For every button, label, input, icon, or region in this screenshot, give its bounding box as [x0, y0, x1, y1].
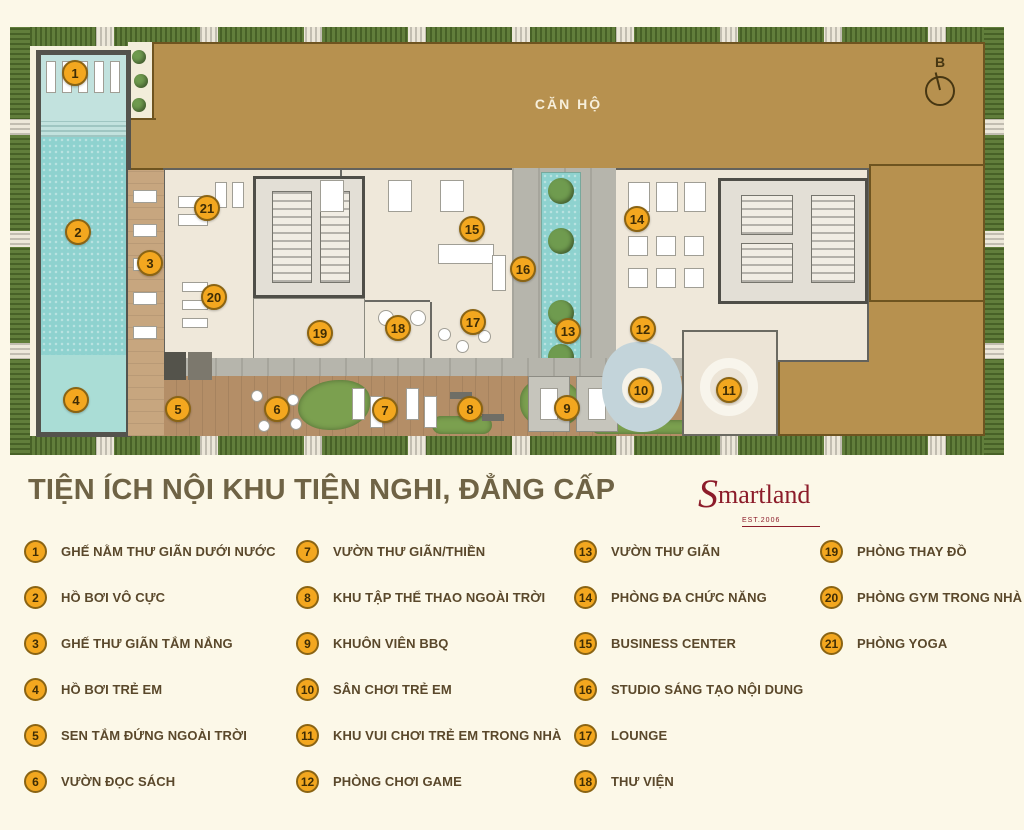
legend-item-9: 9KHUÔN VIÊN BBQ	[296, 632, 562, 655]
legend-item-label: SEN TẮM ĐỨNG NGOÀI TRỜI	[61, 728, 247, 743]
legend-item-number: 6	[24, 770, 47, 793]
plan-marker-3: 3	[137, 250, 163, 276]
legend-item-number: 4	[24, 678, 47, 701]
legend-item-label: PHÒNG YOGA	[857, 636, 947, 651]
legend-item-number: 16	[574, 678, 597, 701]
legend-item-13: 13VƯỜN THƯ GIÃN	[574, 540, 803, 563]
legend-item-label: BUSINESS CENTER	[611, 636, 736, 651]
legend-item-number: 7	[296, 540, 319, 563]
plan-marker-2: 2	[65, 219, 91, 245]
legend-item-label: PHÒNG GYM TRONG NHÀ	[857, 590, 1022, 605]
plan-marker-8: 8	[457, 396, 483, 422]
legend-item-12: 12PHÒNG CHƠI GAME	[296, 770, 562, 793]
legend-item-label: PHÒNG THAY ĐỒ	[857, 544, 967, 559]
legend-item-20: 20PHÒNG GYM TRONG NHÀ	[820, 586, 1022, 609]
plan-marker-1: 1	[62, 60, 88, 86]
plan-marker-10: 10	[628, 377, 654, 403]
legend-item-19: 19PHÒNG THAY ĐỒ	[820, 540, 1022, 563]
legend-item-7: 7VƯỜN THƯ GIÃN/THIỀN	[296, 540, 562, 563]
legend-column-4: 19PHÒNG THAY ĐỒ20PHÒNG GYM TRONG NHÀ21PH…	[820, 540, 1022, 678]
legend-item-label: KHUÔN VIÊN BBQ	[333, 636, 449, 651]
plan-marker-18: 18	[385, 315, 411, 341]
legend-item-16: 16STUDIO SÁNG TẠO NỘI DUNG	[574, 678, 803, 701]
legend-item-15: 15BUSINESS CENTER	[574, 632, 803, 655]
legend-item-number: 20	[820, 586, 843, 609]
plan-marker-16: 16	[510, 256, 536, 282]
legend-item-number: 15	[574, 632, 597, 655]
legend-item-label: HỒ BƠI TRẺ EM	[61, 682, 162, 697]
legend-item-label: VƯỜN THƯ GIÃN/THIỀN	[333, 544, 485, 559]
legend-item-label: HỒ BƠI VÔ CỰC	[61, 590, 165, 605]
legend-column-1: 1GHẾ NẰM THƯ GIÃN DƯỚI NƯỚC2HỒ BƠI VÔ CỰ…	[24, 540, 276, 816]
legend-column-3: 13VƯỜN THƯ GIÃN14PHÒNG ĐA CHỨC NĂNG15BUS…	[574, 540, 803, 816]
legend-item-2: 2HỒ BƠI VÔ CỰC	[24, 586, 276, 609]
legend-item-21: 21PHÒNG YOGA	[820, 632, 1022, 655]
legend-item-number: 8	[296, 586, 319, 609]
legend-item-1: 1GHẾ NẰM THƯ GIÃN DƯỚI NƯỚC	[24, 540, 276, 563]
plan-markers: 123456789101112131415161718192021	[0, 0, 1024, 462]
legend-item-17: 17LOUNGE	[574, 724, 803, 747]
plan-marker-14: 14	[624, 206, 650, 232]
legend-item-number: 21	[820, 632, 843, 655]
legend-item-label: VƯỜN THƯ GIÃN	[611, 544, 720, 559]
legend-item-label: VƯỜN ĐỌC SÁCH	[61, 774, 175, 789]
legend-item-label: PHÒNG ĐA CHỨC NĂNG	[611, 590, 767, 605]
plan-marker-20: 20	[201, 284, 227, 310]
legend-item-label: SÂN CHƠI TRẺ EM	[333, 682, 452, 697]
legend-item-number: 17	[574, 724, 597, 747]
legend-item-number: 9	[296, 632, 319, 655]
legend-item-11: 11KHU VUI CHƠI TRẺ EM TRONG NHÀ	[296, 724, 562, 747]
legend-item-number: 3	[24, 632, 47, 655]
legend-item-number: 12	[296, 770, 319, 793]
plan-marker-5: 5	[165, 396, 191, 422]
brand-est: EST.2006	[742, 517, 820, 527]
legend-item-label: STUDIO SÁNG TẠO NỘI DUNG	[611, 682, 803, 697]
legend-item-number: 5	[24, 724, 47, 747]
legend-item-number: 2	[24, 586, 47, 609]
legend-column-2: 7VƯỜN THƯ GIÃN/THIỀN8KHU TẬP THỂ THAO NG…	[296, 540, 562, 816]
legend-item-number: 1	[24, 540, 47, 563]
plan-marker-19: 19	[307, 320, 333, 346]
legend-item-4: 4HỒ BƠI TRẺ EM	[24, 678, 276, 701]
plan-marker-21: 21	[194, 195, 220, 221]
plan-marker-12: 12	[630, 316, 656, 342]
legend-item-8: 8KHU TẬP THỂ THAO NGOÀI TRỜI	[296, 586, 562, 609]
legend-item-number: 10	[296, 678, 319, 701]
legend-item-number: 11	[296, 724, 319, 747]
plan-marker-9: 9	[554, 395, 580, 421]
legend-item-number: 14	[574, 586, 597, 609]
plan-marker-11: 11	[716, 377, 742, 403]
floor-plan: CĂN HỘ B	[0, 0, 1024, 462]
legend-item-label: GHẾ THƯ GIÃN TẮM NẮNG	[61, 636, 233, 651]
legend-item-label: LOUNGE	[611, 728, 667, 743]
legend-item-label: KHU TẬP THỂ THAO NGOÀI TRỜI	[333, 590, 545, 605]
brand-name: Smartland	[698, 480, 810, 509]
plan-marker-6: 6	[264, 396, 290, 422]
legend-item-label: THƯ VIỆN	[611, 774, 674, 789]
legend-item-number: 13	[574, 540, 597, 563]
legend-item-18: 18THƯ VIỆN	[574, 770, 803, 793]
legend-item-3: 3GHẾ THƯ GIÃN TẮM NẮNG	[24, 632, 276, 655]
plan-marker-17: 17	[460, 309, 486, 335]
plan-marker-15: 15	[459, 216, 485, 242]
legend-item-14: 14PHÒNG ĐA CHỨC NĂNG	[574, 586, 803, 609]
plan-marker-13: 13	[555, 318, 581, 344]
plan-marker-7: 7	[372, 397, 398, 423]
legend-item-10: 10SÂN CHƠI TRẺ EM	[296, 678, 562, 701]
brand-logo: Smartland EST.2006	[698, 474, 838, 527]
legend-item-number: 19	[820, 540, 843, 563]
page: CĂN HỘ B	[0, 0, 1024, 830]
page-title: TIỆN ÍCH NỘI KHU TIỆN NGHI, ĐẲNG CẤP	[28, 474, 615, 507]
legend-item-number: 18	[574, 770, 597, 793]
legend-item-5: 5SEN TẮM ĐỨNG NGOÀI TRỜI	[24, 724, 276, 747]
legend-item-6: 6VƯỜN ĐỌC SÁCH	[24, 770, 276, 793]
plan-marker-4: 4	[63, 387, 89, 413]
legend-item-label: PHÒNG CHƠI GAME	[333, 774, 462, 789]
legend-item-label: GHẾ NẰM THƯ GIÃN DƯỚI NƯỚC	[61, 544, 276, 559]
legend-item-label: KHU VUI CHƠI TRẺ EM TRONG NHÀ	[333, 728, 562, 743]
